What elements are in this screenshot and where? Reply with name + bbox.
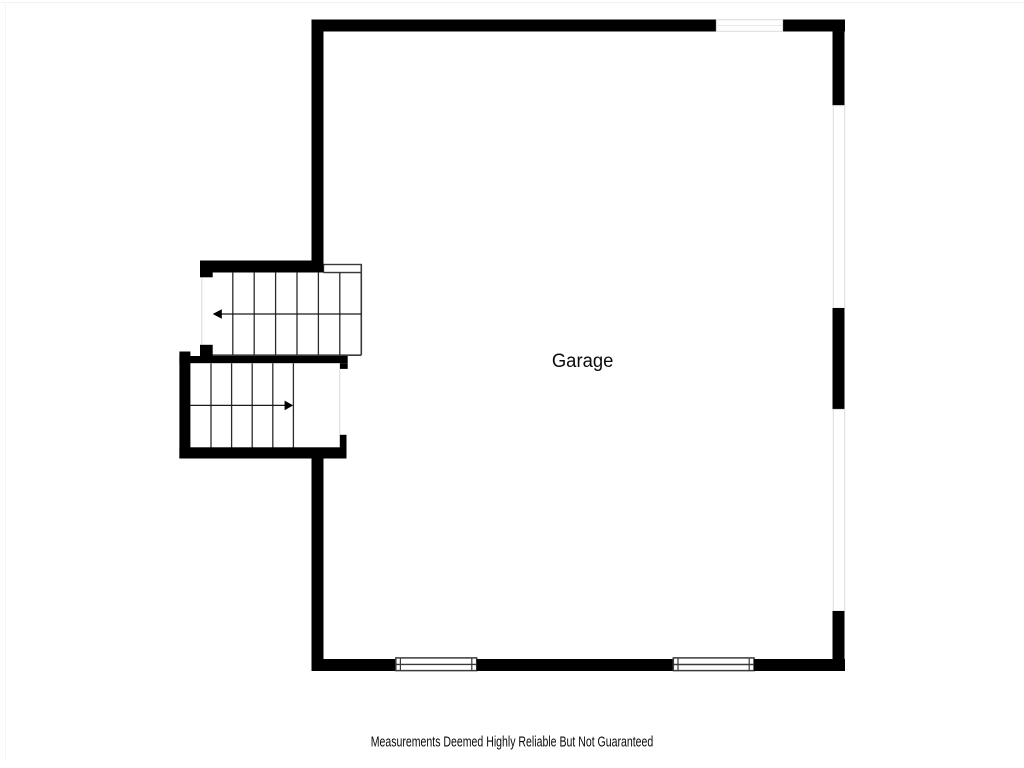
svg-text:Garage: Garage xyxy=(552,350,614,372)
svg-text:Measurements Deemed Highly Rel: Measurements Deemed Highly Reliable But … xyxy=(371,734,654,750)
